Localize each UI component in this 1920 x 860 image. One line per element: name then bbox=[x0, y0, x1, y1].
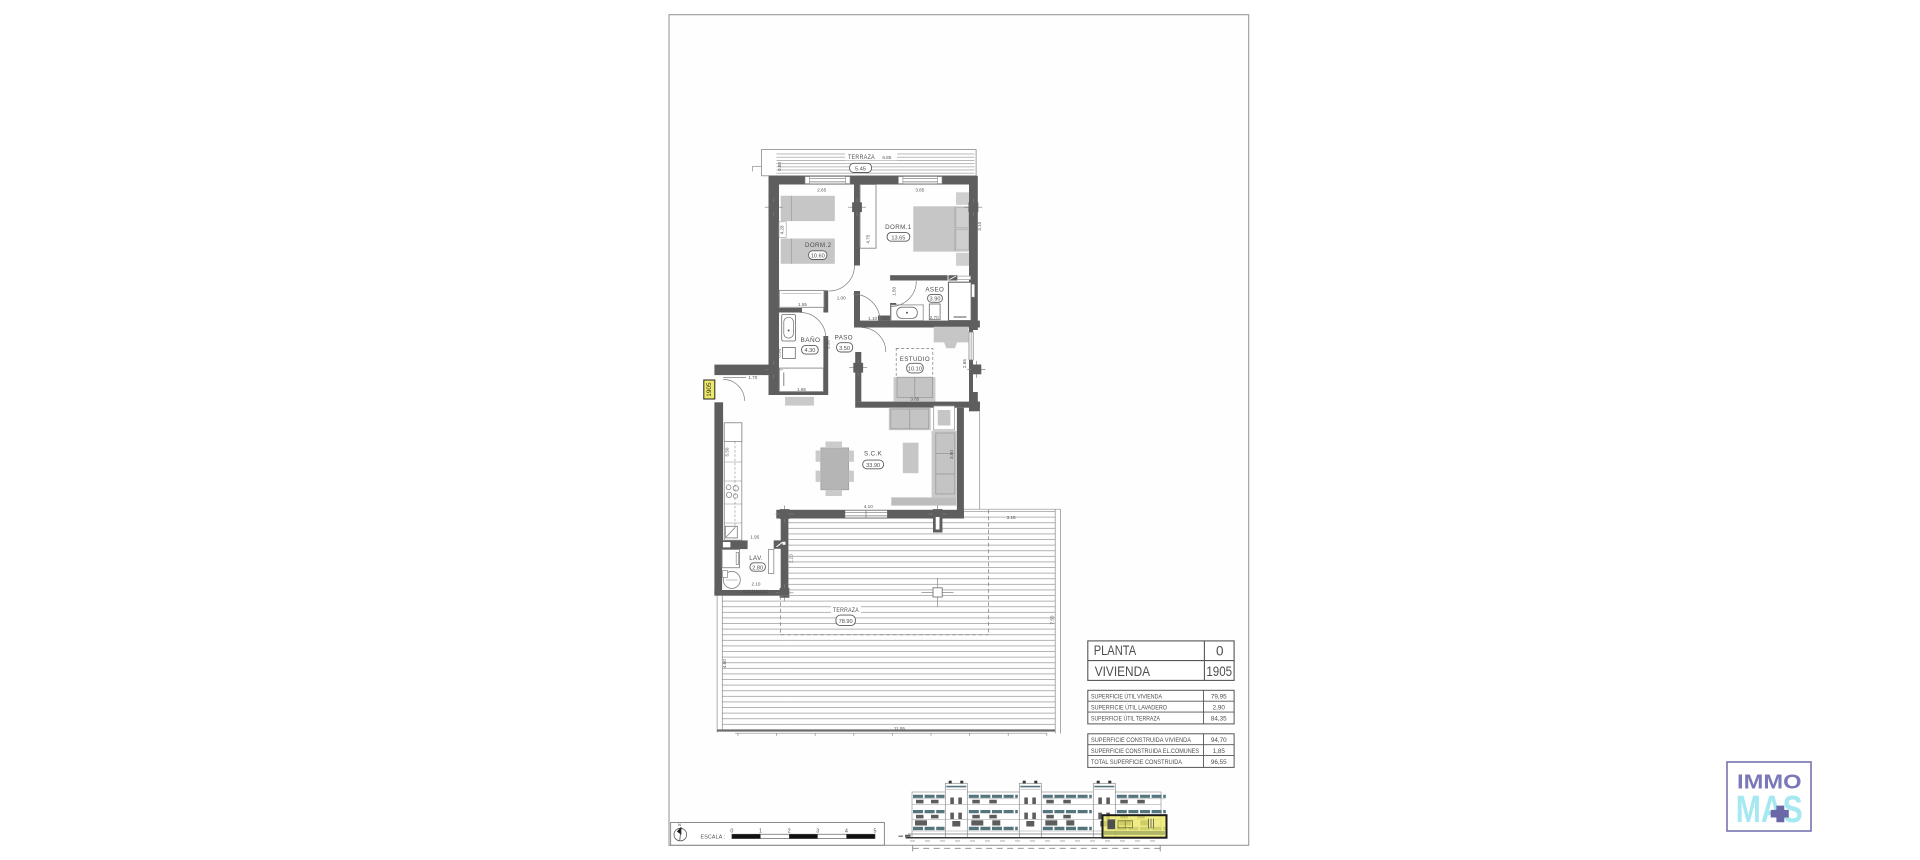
svg-text:4.75: 4.75 bbox=[865, 234, 870, 243]
svg-text:78.90: 78.90 bbox=[839, 619, 853, 625]
svg-text:1.95: 1.95 bbox=[750, 534, 759, 539]
svg-text:0: 0 bbox=[1216, 644, 1224, 659]
svg-text:2,90: 2,90 bbox=[1213, 705, 1226, 712]
svg-text:0.80: 0.80 bbox=[777, 162, 782, 171]
svg-text:PLANTA: PLANTA bbox=[1094, 643, 1137, 658]
svg-text:DORM.1: DORM.1 bbox=[885, 224, 912, 231]
svg-text:2.70: 2.70 bbox=[930, 315, 939, 320]
svg-text:SUPERFICIE ÚTIL LAVADERO: SUPERFICIE ÚTIL LAVADERO bbox=[1091, 703, 1167, 712]
svg-text:1905: 1905 bbox=[706, 382, 713, 397]
svg-text:3: 3 bbox=[816, 828, 819, 834]
svg-text:ASEO: ASEO bbox=[925, 286, 944, 293]
svg-text:10.60: 10.60 bbox=[811, 254, 825, 260]
svg-text:3.10: 3.10 bbox=[977, 221, 982, 230]
svg-text:1: 1 bbox=[759, 828, 762, 834]
svg-text:13.65: 13.65 bbox=[891, 235, 905, 241]
svg-text:4.10: 4.10 bbox=[864, 504, 873, 509]
svg-text:TERRAZA: TERRAZA bbox=[848, 154, 875, 161]
svg-text:VIVIENDA: VIVIENDA bbox=[1095, 664, 1150, 679]
svg-text:SUPERFICIE ÚTIL TERRAZA: SUPERFICIE ÚTIL TERRAZA bbox=[1091, 713, 1161, 722]
svg-text:1905: 1905 bbox=[1206, 664, 1232, 679]
svg-text:5: 5 bbox=[874, 828, 877, 834]
svg-text:4.28: 4.28 bbox=[779, 225, 784, 234]
svg-text:LAV.: LAV. bbox=[749, 555, 763, 562]
svg-text:3.15: 3.15 bbox=[1007, 515, 1016, 520]
svg-text:1,85: 1,85 bbox=[1213, 748, 1226, 755]
svg-text:79,95: 79,95 bbox=[1211, 694, 1227, 701]
svg-text:3.50: 3.50 bbox=[826, 340, 831, 349]
svg-text:3.50: 3.50 bbox=[839, 346, 850, 352]
svg-text:BAÑO: BAÑO bbox=[801, 337, 821, 344]
svg-text:MAS: MAS bbox=[1736, 789, 1803, 831]
svg-text:96,55: 96,55 bbox=[1211, 759, 1227, 766]
svg-text:84,35: 84,35 bbox=[1211, 715, 1227, 722]
svg-text:2.80: 2.80 bbox=[752, 565, 763, 571]
svg-text:1.50: 1.50 bbox=[892, 286, 897, 295]
svg-text:5.45: 5.45 bbox=[855, 166, 866, 172]
svg-text:N: N bbox=[678, 822, 681, 827]
svg-text:1.70: 1.70 bbox=[748, 375, 757, 380]
svg-text:10.10: 10.10 bbox=[908, 367, 922, 373]
svg-text:4: 4 bbox=[845, 828, 848, 834]
svg-text:TERRAZA: TERRAZA bbox=[833, 607, 859, 614]
svg-text:SUPERFICIE CONSTRUIDA VIVIENDA: SUPERFICIE CONSTRUIDA VIVIENDA bbox=[1091, 737, 1192, 744]
svg-text:1.65: 1.65 bbox=[797, 387, 806, 392]
svg-text:PASO: PASO bbox=[835, 335, 853, 342]
svg-text:0: 0 bbox=[730, 828, 733, 834]
svg-text:2.10: 2.10 bbox=[752, 581, 761, 586]
svg-text:1.00: 1.00 bbox=[837, 295, 846, 300]
svg-text:2: 2 bbox=[788, 828, 791, 834]
svg-text:4.30: 4.30 bbox=[804, 348, 815, 354]
svg-text:2.65: 2.65 bbox=[962, 359, 967, 368]
svg-text:ESTUDIO: ESTUDIO bbox=[900, 356, 930, 363]
svg-text:7.50: 7.50 bbox=[1050, 615, 1055, 624]
svg-text:SUPERFICIE ÚTIL VIVIENDA: SUPERFICIE ÚTIL VIVIENDA bbox=[1091, 692, 1163, 701]
svg-text:DORM.2: DORM.2 bbox=[805, 242, 832, 249]
svg-text:11.55: 11.55 bbox=[894, 726, 906, 731]
svg-text:SUPERFICIE CONSTRUIDA EL.COMUN: SUPERFICIE CONSTRUIDA EL.COMUNES bbox=[1091, 748, 1199, 755]
svg-text:4.60: 4.60 bbox=[722, 659, 727, 668]
svg-text:1.55: 1.55 bbox=[798, 302, 807, 307]
svg-text:5.50: 5.50 bbox=[725, 447, 730, 456]
svg-text:1.10: 1.10 bbox=[868, 316, 877, 321]
svg-text:TOTAL SUPERFICIE CONSTRUIDA: TOTAL SUPERFICIE CONSTRUIDA bbox=[1091, 759, 1183, 766]
svg-text:2.65: 2.65 bbox=[817, 187, 826, 192]
svg-text:94,70: 94,70 bbox=[1211, 737, 1227, 744]
svg-text:S.C.K: S.C.K bbox=[864, 450, 883, 457]
svg-text:0.90: 0.90 bbox=[777, 348, 782, 357]
svg-text:6.85: 6.85 bbox=[882, 155, 891, 160]
svg-text:ESCALA :: ESCALA : bbox=[701, 835, 726, 841]
svg-text:3.85: 3.85 bbox=[915, 187, 924, 192]
svg-text:3.90: 3.90 bbox=[930, 297, 941, 303]
svg-text:3.85: 3.85 bbox=[910, 396, 919, 401]
svg-text:3.60: 3.60 bbox=[949, 450, 954, 459]
svg-text:33.90: 33.90 bbox=[866, 463, 880, 469]
